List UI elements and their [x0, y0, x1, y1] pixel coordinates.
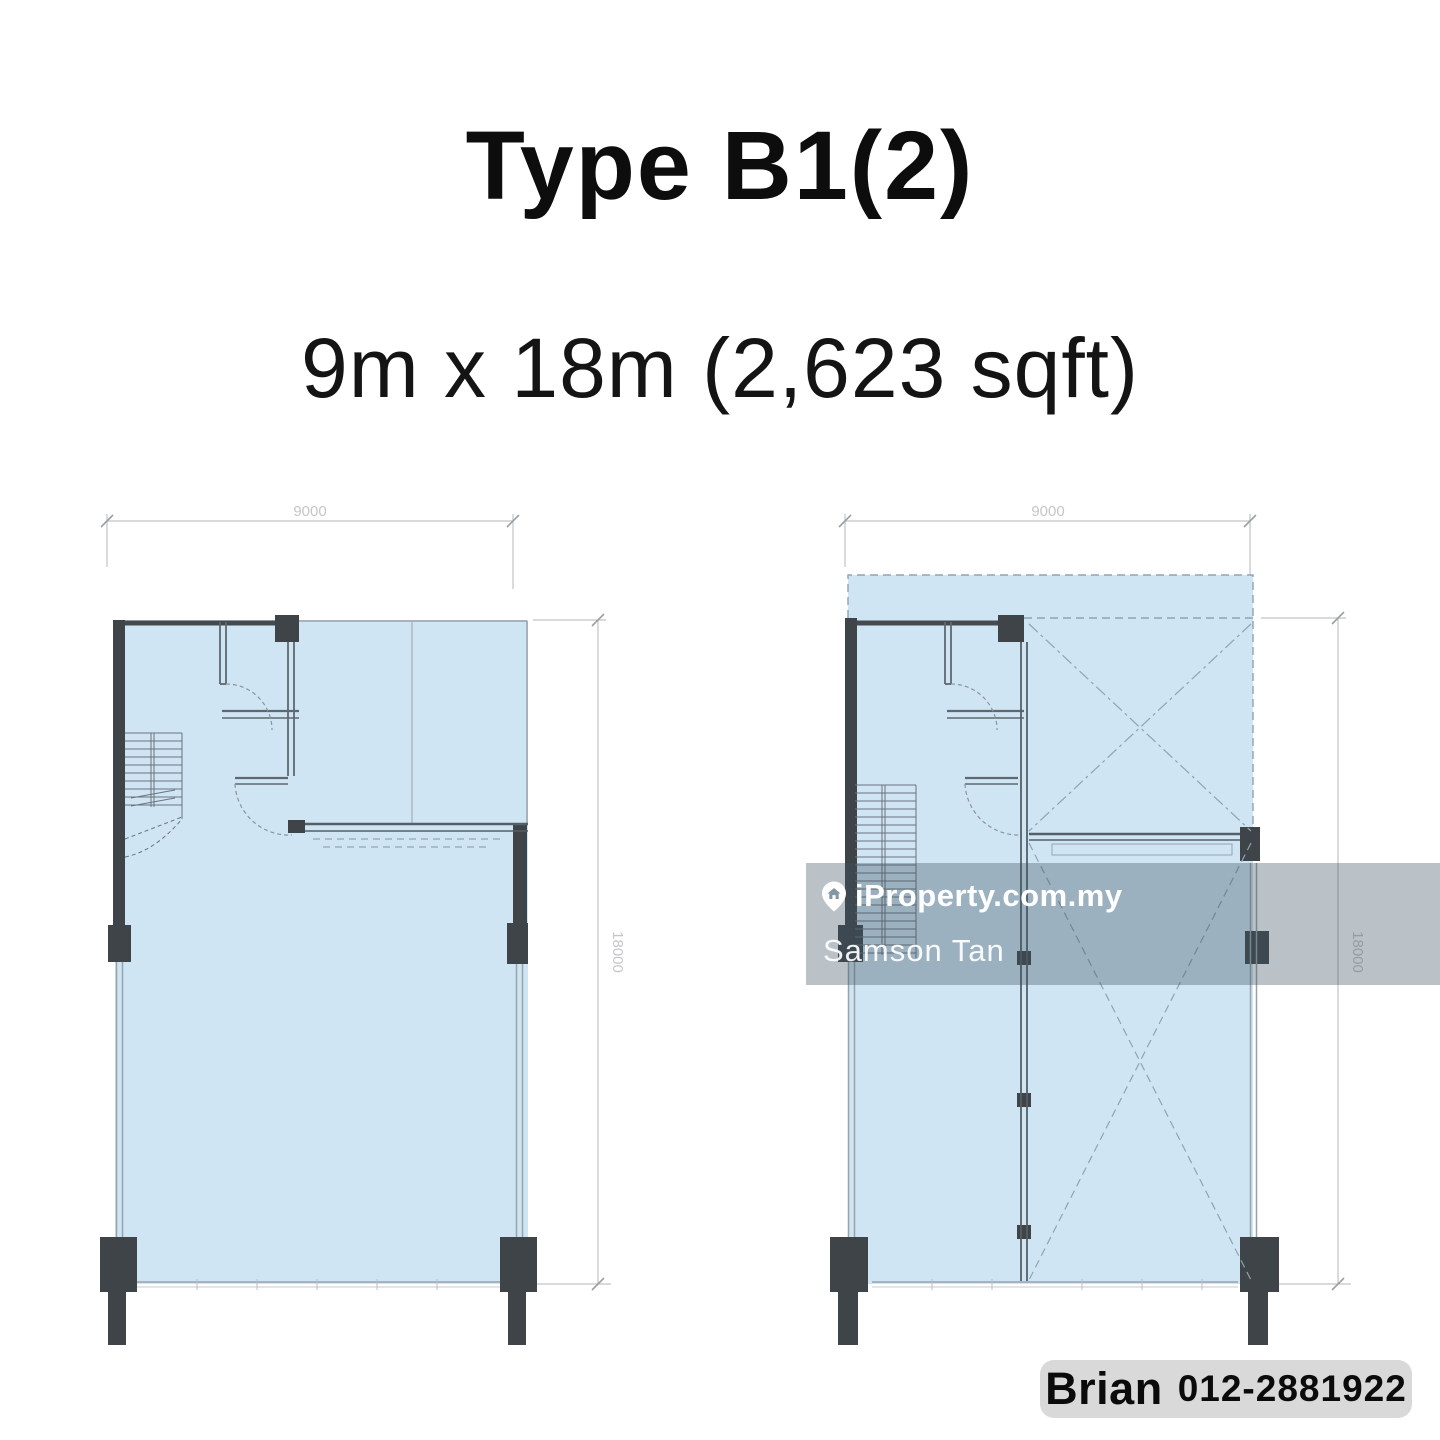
contact-name: Brian [1045, 1363, 1163, 1415]
dim-width-label: 9000 [1031, 503, 1064, 520]
page-subtitle: 9m x 18m (2,623 sqft) [0, 320, 1440, 417]
contact-banner: Brian 012-2881922 [1040, 1360, 1412, 1418]
watermark-band: iProperty.com.my Samson Tan [806, 863, 1440, 985]
floor-area [115, 620, 528, 1284]
ground-floor-plan: 9000 18000 [85, 485, 630, 1365]
watermark-agent: Samson Tan [823, 933, 1005, 969]
floor-plan-page: Type B1(2) 9m x 18m (2,623 sqft) 9000 18… [0, 0, 1440, 1440]
location-pin-house-icon [822, 881, 846, 912]
dim-width [101, 514, 519, 589]
dim-width-label: 9000 [293, 503, 326, 520]
dim-height [533, 614, 611, 1290]
contact-phone: 012-2881922 [1178, 1368, 1407, 1410]
brand-row: iProperty.com.my [822, 879, 1123, 913]
dim-height-label: 18000 [609, 931, 626, 973]
page-title: Type B1(2) [0, 110, 1440, 222]
watermark-brand: iProperty.com.my [855, 878, 1123, 914]
